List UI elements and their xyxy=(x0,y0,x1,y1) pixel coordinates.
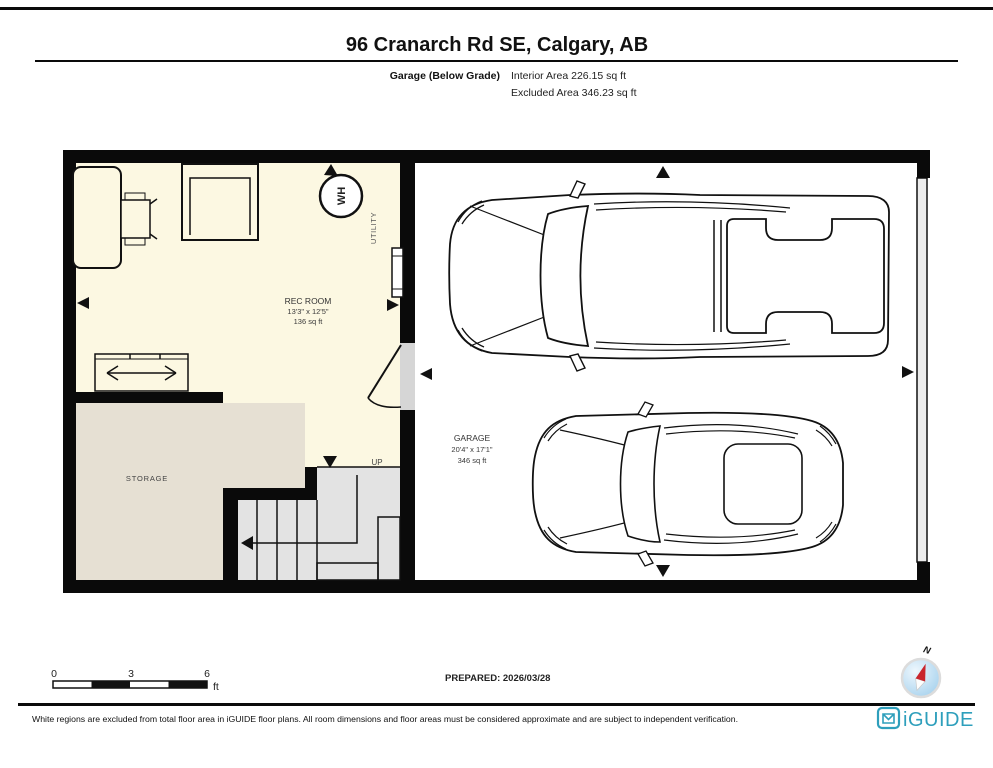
wall-storage xyxy=(63,392,223,403)
top-rule xyxy=(0,7,993,10)
interior-area-label: Interior Area 226.15 sq ft xyxy=(511,70,626,82)
wall-right-bottom-stub xyxy=(917,562,930,593)
floorplan-canvas: 96 Cranarch Rd SE, Calgary, AB Garage (B… xyxy=(0,0,993,768)
scale-tick-3: 3 xyxy=(128,668,134,680)
wall-landing-stub xyxy=(305,467,317,500)
water-heater-label: WH xyxy=(336,187,348,205)
iguide-logo-text: iGUIDE xyxy=(903,709,974,731)
excluded-area-label: Excluded Area 346.23 sq ft xyxy=(511,87,637,99)
scale-tick-6: 6 xyxy=(204,668,210,680)
iguide-logo: iGUIDE xyxy=(878,708,974,731)
scale-bar-segment xyxy=(92,681,131,688)
compass-north-label: N xyxy=(922,644,933,657)
wall-right-top-stub xyxy=(917,150,930,178)
chair-armrest xyxy=(125,193,145,200)
sedan-windshield xyxy=(621,426,661,542)
garage-area: 346 sq ft xyxy=(458,456,488,465)
wall-divider-lower xyxy=(400,410,415,580)
scale-unit: ft xyxy=(213,681,219,693)
rec-room-area: 136 sq ft xyxy=(294,317,324,326)
storage-floor-upper xyxy=(76,403,305,488)
chair-armrest xyxy=(125,238,145,245)
electrical-panel xyxy=(392,248,403,297)
rec-room-dimensions: 13'3" x 12'5" xyxy=(287,307,328,316)
truck-windshield xyxy=(541,206,589,346)
garage-dimensions: 20'4" x 17'1" xyxy=(451,445,492,454)
vehicle-truck xyxy=(449,181,889,371)
page-title: 96 Cranarch Rd SE, Calgary, AB xyxy=(346,34,648,56)
footer-rule xyxy=(18,703,975,706)
wall-bottom xyxy=(63,580,930,593)
office-chair xyxy=(121,200,150,238)
floorplan-page: 96 Cranarch Rd SE, Calgary, AB Garage (B… xyxy=(0,0,993,768)
rec-room-name: REC ROOM xyxy=(285,296,332,306)
header-rule xyxy=(35,60,958,62)
storage-floor-lower xyxy=(76,488,223,580)
compass: N xyxy=(902,644,940,697)
storage-name: STORAGE xyxy=(126,474,168,483)
truck-body xyxy=(449,194,889,359)
vehicle-sedan xyxy=(533,402,843,566)
desk xyxy=(73,167,121,268)
doorway-gap xyxy=(400,343,415,410)
wall-stair-left xyxy=(223,488,238,580)
wall-top xyxy=(63,150,930,163)
iguide-logo-icon xyxy=(878,708,899,728)
utility-label: UTILITY xyxy=(369,212,378,244)
armchair xyxy=(182,164,258,240)
iguide-logo-glyph xyxy=(883,714,894,723)
scale-bar-segment xyxy=(169,681,208,688)
floor-label: Garage (Below Grade) xyxy=(390,70,500,82)
prepared-date: PREPARED: 2026/03/28 xyxy=(445,673,550,684)
footer-disclaimer: White regions are excluded from total fl… xyxy=(32,714,738,724)
garage-name: GARAGE xyxy=(454,433,491,443)
garage-door xyxy=(917,178,927,562)
sedan-rear-window xyxy=(724,444,802,524)
scale-tick-0: 0 xyxy=(51,668,57,680)
scale-bar: 0 3 6 ft xyxy=(51,668,219,693)
stairs-up-label: UP xyxy=(371,458,382,467)
